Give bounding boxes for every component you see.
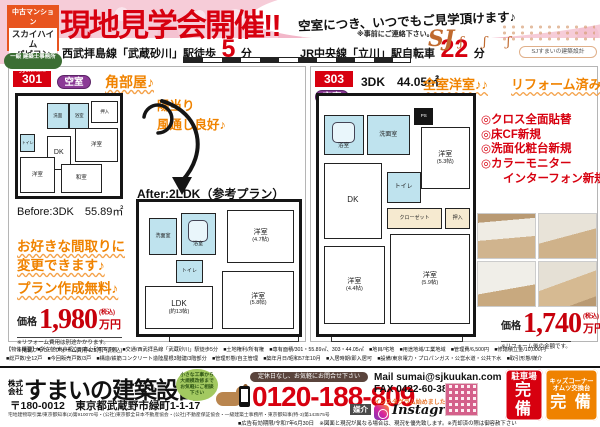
room-closet: クローゼット: [387, 208, 442, 229]
appeal-line-2: 変更できます♪: [17, 254, 105, 274]
mail-address: Mail sumai@sjkuukan.com: [374, 372, 502, 383]
interior-photo-room1: [538, 213, 597, 259]
room-japanese: 和室: [61, 164, 102, 193]
parking-badge: 駐車場 完 備: [505, 369, 543, 421]
interior-photos: [477, 213, 597, 307]
logo-tag: 中古マンション: [9, 7, 57, 27]
price-301: 価格 1,980 (税込) 万円: [17, 307, 121, 332]
room-western-1: 洋室: [75, 128, 118, 162]
phone-icon: [239, 386, 250, 407]
room-western-2: 洋室 (5.9帖): [390, 234, 470, 324]
room-toilet: トイレ: [176, 260, 203, 282]
room-western-2: 洋室: [20, 157, 55, 193]
room-washroom: 洗面: [47, 103, 69, 129]
room-ldk: LDK (約13帖): [145, 286, 212, 328]
license-pill: 一級 建築士事務所: [4, 53, 62, 69]
room-bath: 浴室: [324, 115, 364, 155]
appeal-renovated: リフォーム済み♪: [511, 74, 600, 93]
corner-room-label: 角部屋♪: [105, 72, 154, 92]
mascot-characters: SJ ʃ ʃ ʃ: [428, 26, 518, 52]
mascot-badge: SJすまいの建築設計: [519, 46, 597, 58]
room-bath: 浴室: [69, 103, 89, 129]
room-washroom: 洗面室: [367, 115, 410, 155]
bathtub-icon: [188, 220, 208, 242]
vacancy-badge: 空室: [57, 75, 91, 89]
room-dk: DK: [324, 163, 383, 239]
speech-bubble: 小さな工事から大規模改修までお気軽にご相談下さい: [176, 369, 218, 401]
room-washroom: 洗面室: [149, 218, 178, 255]
room-ps: PS: [414, 108, 432, 125]
floorplan-303: 浴室 洗面室 PS 洋室 (5.3帖) DK トイレ クローゼット 押入 洋室 …: [316, 93, 476, 337]
before-label: Before:3DK 55.89㎡: [17, 203, 123, 219]
interior-photo-room3: [538, 261, 597, 307]
balcony: [169, 337, 299, 342]
room-oshiire: 押入: [445, 208, 470, 229]
floorplan-after: 洗面室 浴室 トイレ 洋室 (4.7帖) LDK (約13帖) 洋室 (5.8帖…: [136, 199, 302, 337]
unit-number-badge: 303: [315, 71, 353, 87]
appeal-line-1: お好きな間取りに: [17, 235, 125, 255]
room-western-2: 洋室 (5.8帖): [222, 271, 294, 329]
room-toilet: トイレ: [20, 134, 35, 152]
unit-303-panel: 303 3DK 44.05㎡ 空室 全室洋室♪♪ リフォーム済み♪ 浴室 洗面室…: [310, 66, 598, 342]
property-overview-line-2: ■総戸数/全12戸 ■今回販売戸数/3戸 ■構造/鉄筋コンクリート造陸屋根3階建…: [6, 355, 596, 362]
price-303: 価格 1,740 (税込) 万円: [501, 311, 600, 336]
kids-corner-badge: キッズコーナー オムツ交換台 完 備: [545, 369, 598, 421]
scale-bar: [183, 57, 411, 63]
footer-divider: [0, 366, 600, 368]
interior-photo-room2: [477, 261, 536, 307]
qr-code: [445, 383, 478, 416]
bathtub-icon: [332, 122, 355, 143]
deal-type-badge: 媒介: [350, 404, 371, 415]
floorplan-before: 洗面 浴室 押入 トイレ DK 洋室 洋室 和室: [15, 93, 123, 199]
interior-photo-kitchen: [477, 213, 536, 259]
room-toilet: トイレ: [387, 172, 421, 203]
renovation-feature-list: ◎クロス全面貼替 ◎床CF新規 ◎洗面化粧台新規 ◎カラーモニター インターフォ…: [481, 113, 600, 187]
balcony: [331, 337, 463, 342]
unit-301-panel: 301 空室 角部屋♪ 陽当り 風通し良好♪ 洗面 浴室 押入 トイレ DK 洋…: [8, 66, 306, 342]
room-western-1: 洋室 (4.7帖): [227, 210, 294, 263]
room-western-3: 洋室 (4.4帖): [324, 246, 386, 325]
instagram-icon: [374, 405, 389, 420]
room-closet: 押入: [91, 101, 118, 123]
appeal-line-3: プラン作成無料♪: [17, 277, 118, 297]
company-logo: 中古マンション スカイハイム パピヨン Sumai no Jyukēhen: [7, 5, 59, 51]
appeal-all-western: 全室洋室♪♪: [423, 74, 488, 93]
subtitle-note: ※事前にご連絡下さい。: [357, 29, 434, 39]
property-overview-line-1: 【物件概要】■所在地/東京都立川市上砂町5丁目 ■交通/西武拝島線「武蔵砂川」駅…: [6, 346, 596, 353]
room-western-1: 洋室 (5.3帖): [421, 127, 470, 189]
room-bath: 浴室: [181, 213, 216, 255]
